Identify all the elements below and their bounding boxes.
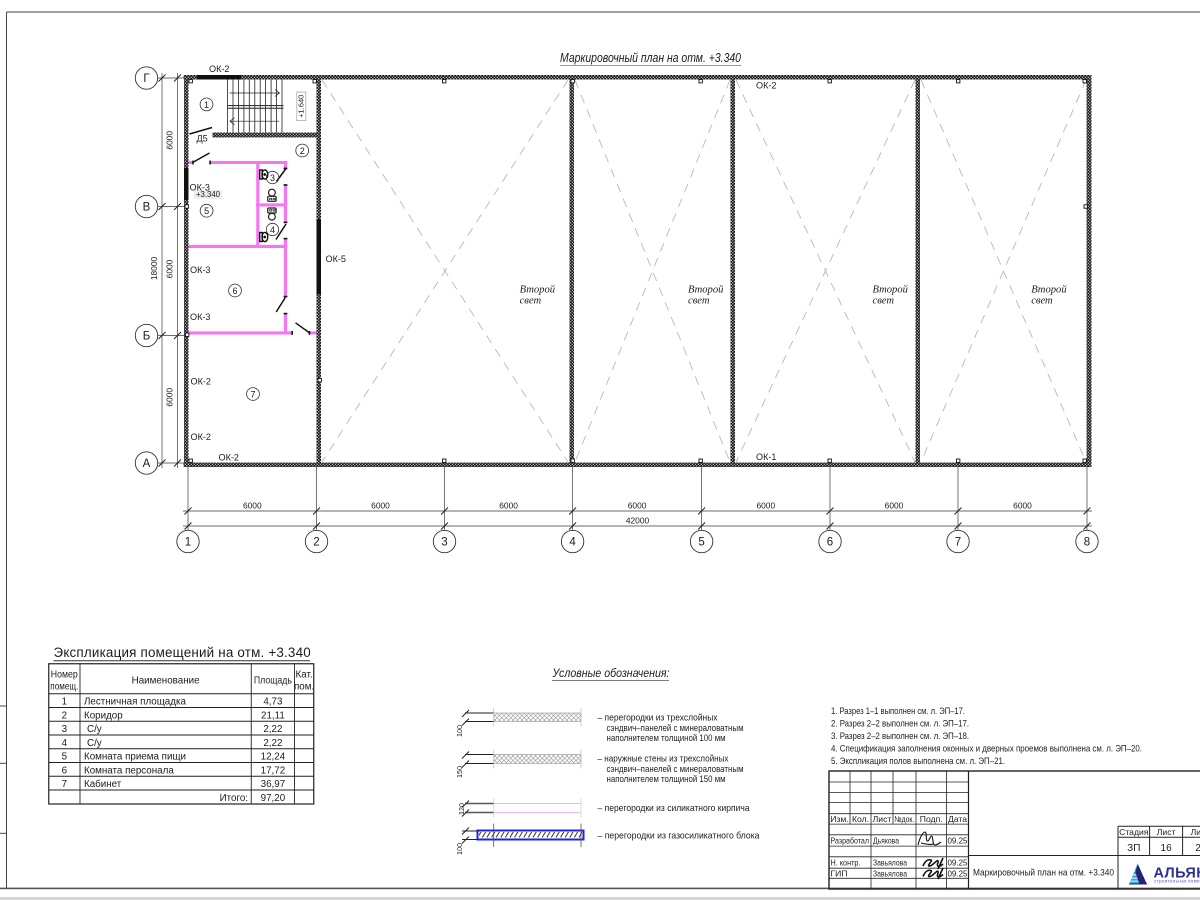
svg-text:Лист: Лист (873, 814, 892, 824)
svg-text:17,72: 17,72 (261, 765, 286, 776)
svg-text:09.25: 09.25 (947, 837, 968, 846)
svg-text:наполнителем толщиной 100 мм: наполнителем толщиной 100 мм (607, 733, 726, 743)
svg-text:1: 1 (62, 697, 67, 708)
svg-text:Д5: Д5 (197, 134, 208, 144)
svg-text:Дата: Дата (948, 814, 967, 824)
svg-text:4: 4 (569, 537, 576, 549)
svg-text:6000: 6000 (165, 388, 175, 407)
svg-text:ОК-3: ОК-3 (190, 265, 210, 275)
svg-text:№док.: №док. (894, 814, 914, 824)
svg-text:8: 8 (1084, 537, 1090, 549)
svg-text:3: 3 (270, 173, 275, 183)
svg-text:Наименование: Наименование (132, 676, 200, 687)
svg-text:6: 6 (827, 537, 833, 549)
svg-text:Н. контр.: Н. контр. (831, 858, 861, 868)
svg-text:С/у: С/у (87, 738, 102, 749)
svg-text:Б: Б (143, 331, 151, 343)
svg-text:С/у: С/у (87, 724, 102, 735)
svg-text:Второй: Второй (688, 285, 724, 296)
svg-text:свет: свет (688, 295, 710, 306)
svg-text:Экспликация помещений на отм.: Экспликация помещений на отм. +3.340 (54, 645, 311, 660)
svg-text:ОК-3: ОК-3 (190, 312, 210, 322)
svg-text:Лестничная площадка: Лестничная площадка (84, 697, 186, 708)
svg-text:6000: 6000 (371, 500, 390, 510)
svg-text:+1.640: +1.640 (297, 95, 306, 118)
svg-text:4,73: 4,73 (263, 697, 283, 708)
svg-text:ОК-3: ОК-3 (190, 183, 210, 193)
svg-text:6000: 6000 (165, 259, 175, 278)
svg-text:100: 100 (455, 843, 464, 855)
svg-text:Условные обозначения:: Условные обозначения: (552, 666, 670, 680)
svg-text:5. Экспликация полов выполнена: 5. Экспликация полов выполнена см. л. ЭП… (831, 755, 1005, 766)
svg-text:пом.: пом. (294, 682, 314, 693)
svg-text:Стадия: Стадия (1119, 827, 1149, 837)
svg-text:Лис: Лис (1191, 827, 1200, 837)
svg-text:Кол.: Кол. (852, 814, 869, 824)
svg-text:3: 3 (441, 537, 447, 549)
svg-text:1: 1 (185, 537, 191, 549)
svg-text:Разработал: Разработал (831, 836, 870, 846)
svg-text:2,22: 2,22 (263, 724, 282, 735)
svg-text:Дьякова: Дьякова (873, 836, 899, 846)
svg-text:Завьялова: Завьялова (873, 858, 907, 868)
svg-text:ОК-2: ОК-2 (191, 432, 211, 442)
svg-text:сэндвич–панелей с минераловатн: сэндвич–панелей с минераловатным (607, 723, 744, 733)
svg-text:6000: 6000 (243, 500, 262, 510)
svg-text:Комната персонала: Комната персонала (84, 765, 174, 776)
svg-text:2: 2 (300, 146, 305, 156)
svg-text:16: 16 (1161, 843, 1173, 854)
svg-text:– наружные стены из трехслойны: – наружные стены из трехслойных (598, 754, 729, 764)
svg-text:Номер: Номер (51, 670, 78, 681)
svg-text:42000: 42000 (626, 515, 650, 525)
svg-text:7: 7 (250, 389, 255, 399)
svg-text:ОК-2: ОК-2 (209, 64, 229, 74)
svg-text:1: 1 (204, 100, 209, 110)
svg-text:6000: 6000 (756, 500, 775, 510)
svg-text:6000: 6000 (628, 500, 647, 510)
svg-text:4: 4 (62, 738, 68, 749)
svg-text:ЗП: ЗП (1127, 843, 1140, 854)
svg-text:2,22: 2,22 (263, 738, 282, 749)
svg-text:Второй: Второй (873, 285, 909, 296)
svg-text:ОК-2: ОК-2 (219, 453, 239, 463)
svg-text:6: 6 (62, 765, 68, 776)
svg-text:Второй: Второй (1031, 285, 1067, 296)
svg-text:7: 7 (62, 779, 67, 790)
svg-text:– перегородки из силикатного к: – перегородки из силикатного кирпича (598, 803, 751, 813)
svg-text:2: 2 (313, 537, 319, 549)
svg-text:09.25: 09.25 (947, 859, 968, 868)
svg-text:7: 7 (955, 537, 961, 549)
svg-text:5: 5 (62, 752, 68, 763)
svg-text:97,20: 97,20 (261, 793, 286, 804)
svg-text:3: 3 (62, 724, 68, 735)
svg-text:5: 5 (698, 537, 704, 549)
svg-text:150: 150 (455, 766, 464, 778)
svg-text:Итого:: Итого: (220, 793, 248, 804)
svg-text:А: А (143, 458, 151, 470)
svg-text:2: 2 (62, 710, 67, 721)
svg-text:6: 6 (232, 286, 237, 296)
svg-text:свет: свет (520, 295, 542, 306)
svg-text:Кабинет: Кабинет (84, 779, 122, 790)
svg-text:100: 100 (455, 725, 464, 737)
svg-text:Второй: Второй (520, 285, 556, 296)
svg-text:6000: 6000 (1013, 500, 1032, 510)
svg-text:Лист: Лист (1157, 827, 1176, 837)
svg-text:6000: 6000 (165, 131, 175, 150)
svg-text:3. Разрез 2–2 выполнен см. л.: 3. Разрез 2–2 выполнен см. л. ЭП–18. (831, 730, 969, 741)
svg-text:В: В (143, 202, 151, 214)
svg-text:Кат.: Кат. (296, 670, 313, 681)
svg-text:свет: свет (1031, 295, 1053, 306)
svg-text:4. Спецификация заполнения око: 4. Спецификация заполнения оконных и две… (831, 743, 1142, 754)
svg-text:строительная компания: строительная компания (1154, 879, 1200, 884)
svg-text:36,97: 36,97 (261, 779, 286, 790)
svg-text:6000: 6000 (499, 500, 518, 510)
svg-text:18000: 18000 (149, 257, 159, 281)
svg-text:Комната приема пищи: Комната приема пищи (84, 752, 186, 763)
svg-text:1. Разрез 1–1 выполнен см. л.: 1. Разрез 1–1 выполнен см. л. ЭП–17. (831, 705, 965, 716)
svg-text:ОК-1: ОК-1 (756, 452, 776, 462)
svg-text:помещ.: помещ. (50, 682, 78, 693)
svg-text:сэндвич–панелей с минераловатн: сэндвич–панелей с минераловатным (607, 764, 744, 774)
svg-text:– перегородки из газосиликатно: – перегородки из газосиликатного блока (598, 830, 761, 840)
svg-text:наполнителем толщиной 150 мм: наполнителем толщиной 150 мм (607, 774, 726, 784)
svg-text:2: 2 (1195, 843, 1200, 854)
svg-text:4: 4 (270, 225, 275, 235)
svg-text:ОК-2: ОК-2 (756, 80, 776, 90)
svg-text:ОК-5: ОК-5 (326, 254, 346, 264)
svg-text:Изм.: Изм. (830, 814, 848, 824)
svg-text:5: 5 (204, 206, 209, 216)
svg-text:12,24: 12,24 (261, 752, 286, 763)
svg-text:ОК-2: ОК-2 (191, 377, 211, 387)
svg-text:6000: 6000 (885, 500, 904, 510)
svg-text:ГИП: ГИП (831, 868, 848, 878)
svg-text:Маркировочный план на отм. +3.: Маркировочный план на отм. +3.340 (560, 51, 741, 65)
svg-text:– перегородки из трехслойных: – перегородки из трехслойных (598, 713, 718, 723)
svg-text:Маркировочный план на отм. +3.: Маркировочный план на отм. +3.340 (973, 868, 1114, 879)
svg-text:120: 120 (457, 803, 466, 815)
svg-text:09.25: 09.25 (947, 869, 968, 878)
svg-text:Г: Г (143, 73, 150, 85)
svg-text:2. Разрез 2–2 выполнен см. л.: 2. Разрез 2–2 выполнен см. л. ЭП–17. (831, 718, 969, 729)
svg-text:Завьялова: Завьялова (873, 868, 907, 878)
svg-text:Подп.: Подп. (920, 814, 943, 824)
svg-text:21,11: 21,11 (261, 710, 285, 721)
svg-text:Площадь: Площадь (254, 676, 292, 687)
svg-text:Коридор: Коридор (84, 710, 123, 721)
svg-text:свет: свет (873, 295, 895, 306)
